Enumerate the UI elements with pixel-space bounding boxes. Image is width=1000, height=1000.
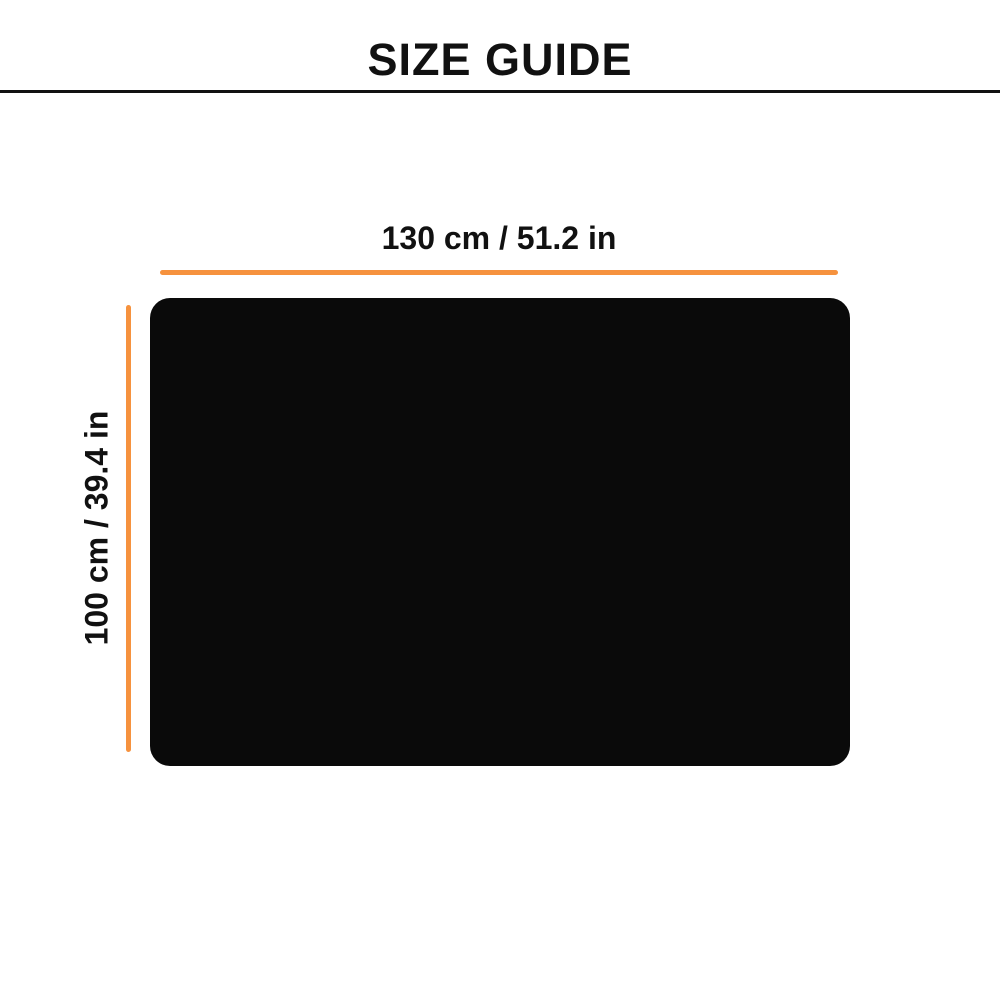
height-dimension-line: [126, 305, 131, 752]
size-guide-page: SIZE GUIDE 130 cm / 51.2 in 100 cm / 39.…: [0, 0, 1000, 1000]
width-dimension-line: [160, 270, 838, 275]
product-rectangle: [150, 298, 850, 766]
width-dimension-label: 130 cm / 51.2 in: [160, 220, 838, 257]
page-title: SIZE GUIDE: [0, 34, 1000, 86]
height-dimension-label: 100 cm / 39.4 in: [77, 305, 117, 752]
title-divider: [0, 90, 1000, 93]
